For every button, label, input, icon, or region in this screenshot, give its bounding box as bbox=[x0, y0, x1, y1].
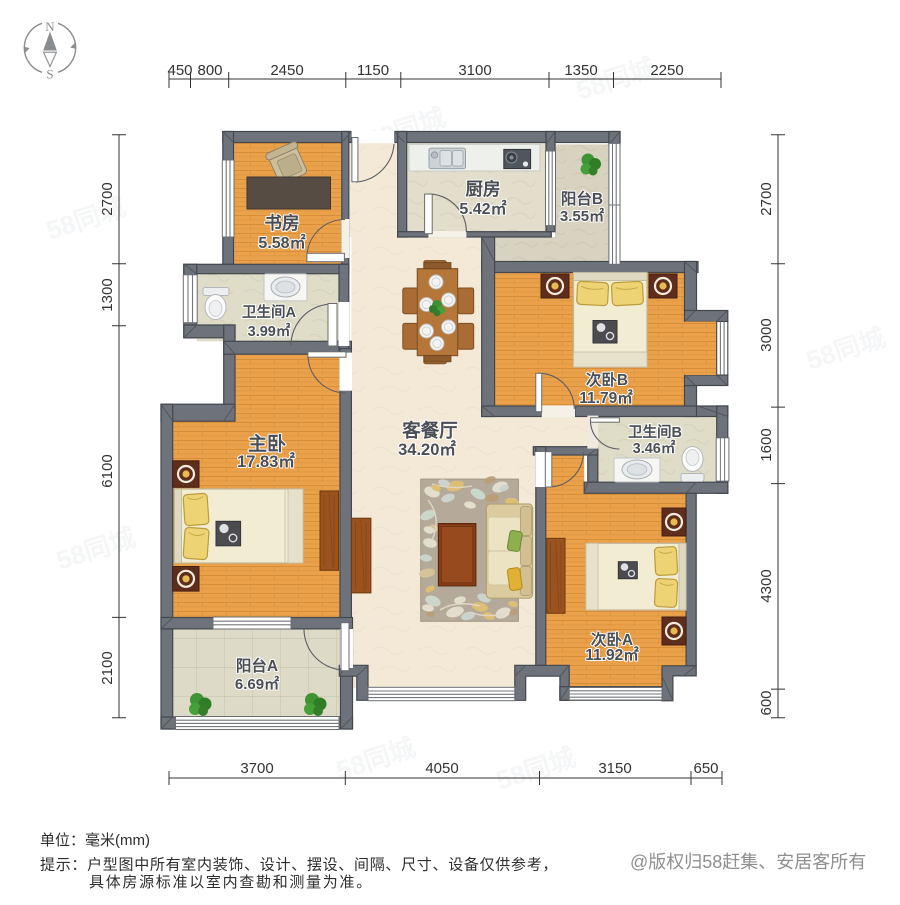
svg-text:单位：毫米(mm): 单位：毫米(mm) bbox=[40, 831, 150, 849]
svg-text:3.99㎡: 3.99㎡ bbox=[248, 322, 291, 340]
svg-text:提示：户型图中所有室内装饰、设计、摆设、间隔、尺寸、设备仅供: 提示：户型图中所有室内装饰、设计、摆设、间隔、尺寸、设备仅供参考， bbox=[40, 857, 558, 874]
svg-text:客餐厅: 客餐厅 bbox=[402, 420, 458, 441]
svg-text:3700: 3700 bbox=[240, 760, 273, 777]
svg-text:11.79㎡: 11.79㎡ bbox=[579, 388, 633, 407]
svg-text:5.58㎡: 5.58㎡ bbox=[258, 233, 305, 252]
svg-text:6.69㎡: 6.69㎡ bbox=[235, 675, 279, 693]
svg-text:S: S bbox=[46, 67, 53, 82]
svg-text:N: N bbox=[45, 19, 55, 34]
svg-text:3100: 3100 bbox=[458, 62, 491, 79]
svg-text:2700: 2700 bbox=[758, 182, 775, 215]
svg-text:5.42㎡: 5.42㎡ bbox=[459, 199, 506, 218]
svg-text:450: 450 bbox=[167, 62, 192, 79]
svg-text:卫生间A: 卫生间A bbox=[242, 303, 296, 321]
svg-text:3.55㎡: 3.55㎡ bbox=[560, 207, 604, 225]
svg-text:600: 600 bbox=[758, 690, 775, 715]
svg-text:阳台A: 阳台A bbox=[236, 656, 278, 675]
svg-text:2100: 2100 bbox=[99, 651, 116, 684]
svg-text:6100: 6100 bbox=[99, 454, 116, 487]
svg-text:次卧B: 次卧B bbox=[586, 370, 628, 389]
svg-text:3.46㎡: 3.46㎡ bbox=[633, 439, 676, 457]
svg-text:主卧: 主卧 bbox=[248, 433, 286, 455]
svg-text:17.83㎡: 17.83㎡ bbox=[237, 451, 295, 471]
svg-text:1300: 1300 bbox=[99, 278, 116, 311]
svg-text:厨房: 厨房 bbox=[466, 179, 501, 199]
svg-text:650: 650 bbox=[693, 760, 718, 777]
svg-text:卫生间B: 卫生间B bbox=[628, 423, 682, 441]
svg-text:1600: 1600 bbox=[758, 428, 775, 461]
svg-text:阳台B: 阳台B bbox=[561, 189, 603, 208]
svg-text:@版权归58赶集、安居客所有: @版权归58赶集、安居客所有 bbox=[630, 852, 866, 872]
svg-text:4050: 4050 bbox=[425, 760, 458, 777]
svg-text:4300: 4300 bbox=[758, 569, 775, 602]
svg-text:2450: 2450 bbox=[270, 62, 303, 79]
svg-text:具体房源标准以室内查勘和测量为准。: 具体房源标准以室内查勘和测量为准。 bbox=[89, 874, 373, 891]
svg-text:2700: 2700 bbox=[99, 182, 116, 215]
svg-text:34.20㎡: 34.20㎡ bbox=[398, 439, 456, 459]
svg-text:800: 800 bbox=[197, 62, 222, 79]
svg-text:1150: 1150 bbox=[357, 62, 389, 79]
svg-text:1350: 1350 bbox=[564, 62, 597, 79]
svg-text:11.92㎡: 11.92㎡ bbox=[585, 645, 639, 664]
svg-text:3000: 3000 bbox=[758, 318, 775, 351]
svg-text:2250: 2250 bbox=[650, 62, 683, 79]
svg-text:3150: 3150 bbox=[598, 760, 631, 777]
svg-text:书房: 书房 bbox=[265, 213, 300, 233]
